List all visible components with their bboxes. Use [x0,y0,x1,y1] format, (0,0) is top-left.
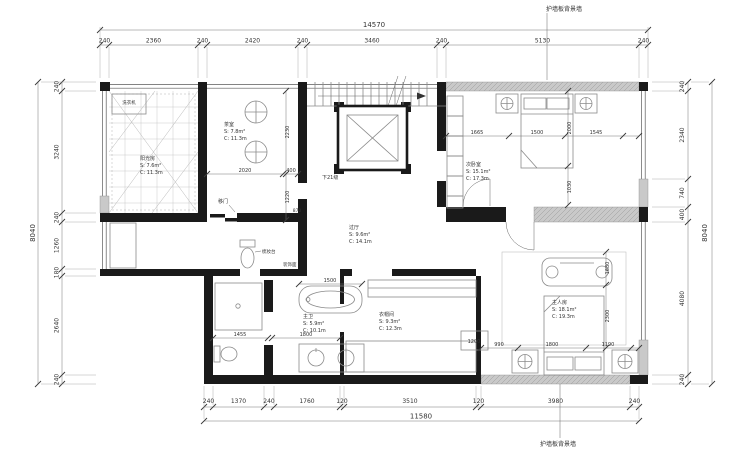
dim-label: 1545 [590,130,603,136]
svg-text:C: 12.3m: C: 12.3m [379,326,402,332]
dim-label: 2020 [239,168,252,174]
wardrobe-column [447,96,463,208]
dim-label: 3460 [364,38,379,45]
dim-label: 240 [679,374,686,386]
dim-label: 2640 [54,318,61,333]
wardrobe [368,280,476,297]
dim-label: 1190 [602,342,615,348]
sliding-door-leaf [225,218,240,222]
svg-text:C: 11.3m: C: 11.3m [140,170,163,176]
dim-label: 240 [679,81,686,93]
panel-wall-top-label: 护墙板背景墙 [546,5,582,13]
dim-label: 1455 [234,332,247,338]
dim-label: 1680 [605,262,611,275]
dim-label: 870 [293,208,302,214]
dim-label: 1760 [299,398,314,405]
toilet-tank [240,240,255,247]
dim-label: 240 [54,81,61,93]
room-label-sunroom: 阳光房 S: 7.6m² C: 11.3m [140,155,163,176]
dim-label: 1220 [285,191,291,204]
wardrobe [346,341,476,372]
svg-text:茶室: 茶室 [224,121,234,128]
dim-label: 1370 [231,398,246,405]
dim-label: 240 [203,398,215,405]
dim-label: 2230 [285,126,291,139]
elevator-shaft [338,106,407,170]
dim-label: 2000 [567,122,573,135]
room-label-closet: 衣帽间 S: 9.3m² C: 12.3m [379,311,402,332]
room-label-hall: 过厅 S: 9.6m² C: 14.1m [349,224,372,245]
room-label-master-bedroom: 主人房 S: 18.1m² C: 19.3m [552,299,576,320]
dim-label: 240 [99,38,111,45]
tea-room [245,101,267,163]
panel-wall-bottom-label: 护墙板背景墙 [540,440,576,448]
dim-label: 4080 [679,291,686,306]
walk-in-closet [346,280,488,372]
svg-text:C: 10.1m: C: 10.1m [303,328,326,334]
wall-block [100,196,109,213]
dim-label: 2340 [679,127,686,142]
sunroom: 洗衣机 [109,91,198,213]
svg-text:衣帽间: 衣帽间 [379,311,394,318]
dim-label: 400 [679,209,686,221]
room-label-tea-room: 茶室 S: 7.8m² C: 11.3m [224,121,247,142]
sink [308,350,324,366]
svg-text:S: 18.1m²: S: 18.1m² [552,307,576,313]
dim-label: 180 [54,267,61,279]
dim-label: 1030 [567,181,573,194]
dim-label: 1665 [471,130,484,136]
dim-label: 2360 [146,38,161,45]
svg-text:S: 7.8m²: S: 7.8m² [224,129,245,135]
svg-text:次卧室: 次卧室 [466,161,481,168]
dim-label: 5130 [535,38,550,45]
door-swing-arc [463,179,490,206]
panel-hatch [481,375,630,384]
planter [110,223,136,268]
svg-text:S: 9.3m²: S: 9.3m² [379,319,400,325]
washer-label: 洗衣机 [122,99,136,106]
dim-label: 120 [473,398,485,405]
svg-text:主卫: 主卫 [303,313,313,320]
dim-label: 740 [679,187,686,199]
dim-label: 400 [286,168,296,174]
stair-direction-arrow [417,93,426,100]
svg-text:C: 19.3m: C: 19.3m [552,314,575,320]
dim-label: 240 [297,38,309,45]
chaise [542,258,612,286]
dim-top-total: 14570 [363,21,385,29]
floorplan-drawing: 14570 240 2360 240 2420 240 3460 240 513… [0,0,752,462]
stairs-note: 下21级 [322,174,338,181]
svg-text:C: 14.1m: C: 14.1m [349,239,372,245]
svg-text:过厅: 过厅 [349,224,359,231]
svg-text:C: 11.3m: C: 11.3m [224,136,247,142]
dim-bottom-total: 11580 [410,413,432,421]
svg-text:S: 5.9m²: S: 5.9m² [303,321,324,327]
room-label-master-bath: 主卫 S: 5.9m² C: 10.1m [303,313,326,334]
dim-label: 240 [197,38,209,45]
dimension-chain-left: 8040 240 3240 240 1260 180 2640 240 [29,79,96,387]
svg-text:S: 7.6m²: S: 7.6m² [140,163,161,169]
wall-block [639,179,648,207]
bathtub [299,286,362,313]
dimension-chain-right: 240 2340 740 400 4080 240 8040 [652,79,715,387]
door-swing-arc [506,222,534,250]
dim-label: 1200 [468,339,481,345]
second-bedroom [447,94,597,208]
dim-label: 120 [336,398,348,405]
dim-label: 2300 [605,310,611,323]
dim-label: 3240 [54,144,61,159]
dim-label: 240 [629,398,641,405]
deco-finish-label: 装饰面 [283,261,297,268]
sliding-door-leaf [210,214,225,218]
dimension-chain-bottom: 240 1370 240 1760 120 3510 120 3980 240 … [201,386,642,424]
shower [215,283,262,330]
dim-label: 240 [54,374,61,386]
dim-label: 3510 [402,398,417,405]
dim-label: 1500 [324,278,337,284]
svg-text:主人房: 主人房 [552,299,567,306]
svg-text:S: 15.1m²: S: 15.1m² [466,169,490,175]
dim-label: 240 [638,38,650,45]
wall-block [639,340,648,375]
dim-label: 1260 [54,238,61,253]
vanity-table-label: 梳妆台 [262,248,276,255]
dim-label: 2420 [245,38,260,45]
svg-text:C: 17.3m: C: 17.3m [466,176,489,182]
toilet-tank [214,346,220,362]
room-label-second-bedroom: 次卧室 S: 15.1m² C: 17.3m [466,161,490,182]
dim-label: 240 [436,38,448,45]
dim-label: 240 [263,398,275,405]
panel-hatch [534,207,639,222]
dimension-chain-top: 14570 240 2360 240 2420 240 3460 240 513… [97,21,651,78]
dim-label: 990 [494,342,504,348]
toilet [241,248,254,268]
dim-label: 1800 [546,342,559,348]
panel-hatch [446,82,639,91]
dim-label: 1500 [531,130,544,136]
svg-text:S: 9.6m²: S: 9.6m² [349,232,370,238]
dim-left-total: 8040 [29,224,37,242]
master-bedroom [502,222,638,375]
toilet [221,347,237,361]
dim-right-total: 8040 [701,224,709,242]
dim-label: 3980 [548,398,563,405]
sliding-door-label: 移门 [218,198,228,205]
floorplan-canvas: 14570 240 2360 240 2420 240 3460 240 513… [0,0,752,462]
svg-text:阳光房: 阳光房 [140,155,155,162]
dim-label: 240 [54,212,61,224]
